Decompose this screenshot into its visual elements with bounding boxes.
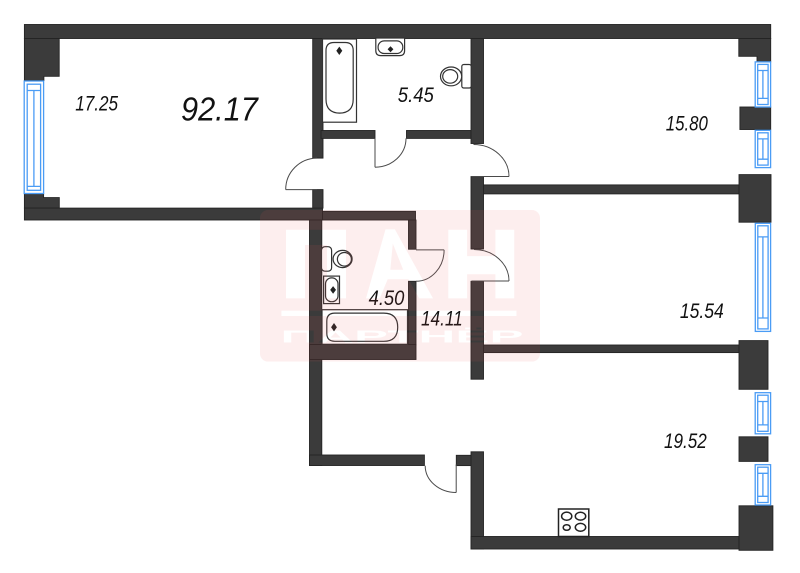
svg-text:17.25: 17.25: [75, 93, 118, 116]
svg-text:15.54: 15.54: [680, 300, 724, 323]
svg-text:15.80: 15.80: [666, 113, 708, 136]
svg-text:92.17: 92.17: [181, 90, 259, 127]
svg-text:5.45: 5.45: [398, 84, 434, 107]
svg-text:19.52: 19.52: [664, 430, 707, 453]
